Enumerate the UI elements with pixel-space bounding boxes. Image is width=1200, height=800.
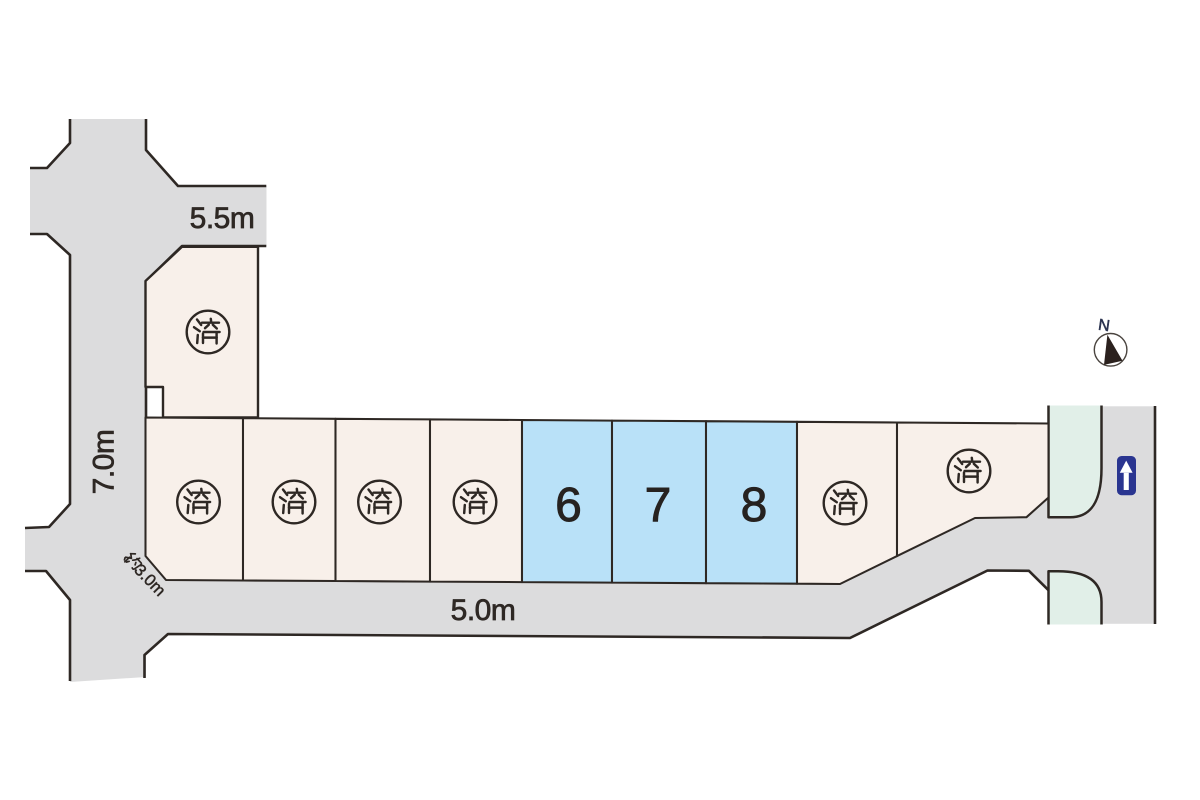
svg-text:8: 8 <box>741 479 768 532</box>
svg-text:7.0m: 7.0m <box>88 430 121 495</box>
svg-text:5.5m: 5.5m <box>190 202 255 235</box>
svg-text:5.0m: 5.0m <box>451 594 516 627</box>
svg-text:6: 6 <box>555 479 582 532</box>
svg-text:N: N <box>1097 317 1111 335</box>
svg-text:7: 7 <box>645 479 672 532</box>
